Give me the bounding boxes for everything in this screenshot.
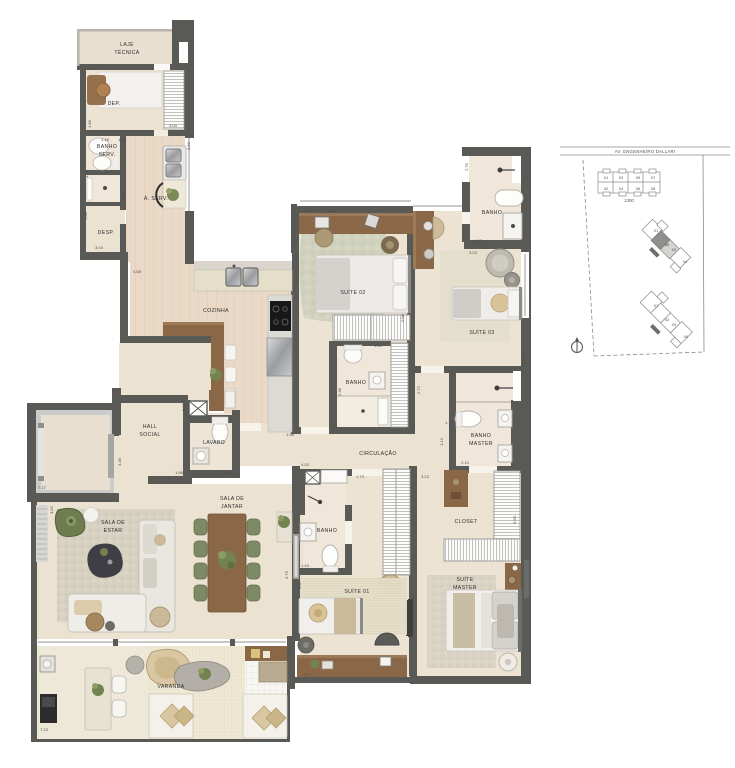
- svg-text:4.58: 4.58: [133, 269, 142, 274]
- svg-text:DESP.: DESP.: [98, 230, 115, 236]
- svg-text:1.12: 1.12: [439, 437, 444, 446]
- svg-text:SUÍTE: SUÍTE: [456, 576, 473, 583]
- svg-text:3.23: 3.23: [469, 250, 478, 255]
- svg-text:LAJE: LAJE: [120, 42, 134, 48]
- svg-text:7.23: 7.23: [40, 727, 49, 732]
- svg-text:1300: 1300: [624, 198, 634, 203]
- svg-text:DEP.: DEP.: [108, 101, 121, 107]
- svg-text:2.54: 2.54: [287, 646, 292, 655]
- svg-text:MASTER: MASTER: [469, 441, 493, 447]
- svg-text:4.20: 4.20: [301, 462, 310, 467]
- svg-text:2.10: 2.10: [461, 460, 470, 465]
- svg-text:02: 02: [665, 317, 670, 322]
- svg-text:02: 02: [665, 242, 670, 247]
- svg-text:MASTER: MASTER: [453, 585, 477, 591]
- svg-text:02: 02: [604, 186, 609, 191]
- svg-text:SOCIAL: SOCIAL: [139, 432, 160, 438]
- svg-text:ESTAR: ESTAR: [104, 528, 123, 534]
- svg-text:04: 04: [684, 334, 689, 339]
- svg-text:1.54: 1.54: [328, 208, 337, 213]
- svg-text:SUÍTE 03: SUÍTE 03: [469, 329, 494, 336]
- svg-text:05: 05: [636, 175, 641, 180]
- svg-text:2.16: 2.16: [181, 402, 186, 411]
- svg-text:1.68: 1.68: [474, 238, 483, 243]
- svg-text:4.46: 4.46: [117, 457, 122, 466]
- svg-text:2.75: 2.75: [464, 162, 469, 171]
- svg-text:COZINHA: COZINHA: [203, 308, 229, 314]
- svg-text:6.90: 6.90: [512, 515, 517, 524]
- svg-text:1.08: 1.08: [121, 191, 126, 200]
- svg-text:1.88: 1.88: [118, 137, 127, 142]
- svg-text:1.43: 1.43: [301, 563, 310, 568]
- svg-text:HALL: HALL: [143, 424, 157, 430]
- svg-text:3.07: 3.07: [297, 580, 302, 589]
- svg-text:3.92: 3.92: [49, 505, 54, 514]
- svg-text:7.17: 7.17: [38, 485, 47, 490]
- svg-text:03: 03: [672, 247, 677, 252]
- svg-text:04: 04: [619, 186, 624, 191]
- svg-text:5.79: 5.79: [284, 570, 289, 579]
- svg-text:01: 01: [604, 175, 609, 180]
- svg-text:1.73: 1.73: [356, 474, 365, 479]
- svg-text:01: 01: [654, 303, 659, 308]
- svg-text:SERV.: SERV.: [99, 152, 116, 158]
- svg-text:1.36: 1.36: [224, 471, 233, 476]
- svg-text:1.96: 1.96: [175, 470, 184, 475]
- svg-text:BANHO: BANHO: [317, 528, 337, 534]
- svg-text:3.03: 3.03: [95, 245, 104, 250]
- svg-text:SUÍTE 01: SUÍTE 01: [344, 588, 369, 595]
- svg-text:01: 01: [654, 228, 659, 233]
- svg-text:VARANDA: VARANDA: [157, 684, 184, 690]
- svg-text:1.38: 1.38: [83, 211, 88, 220]
- svg-text:1.43: 1.43: [374, 343, 383, 348]
- svg-text:1.73: 1.73: [445, 420, 454, 425]
- svg-text:2.38: 2.38: [337, 387, 342, 396]
- svg-text:0.98: 0.98: [400, 313, 405, 322]
- svg-text:BANHO: BANHO: [346, 380, 366, 386]
- svg-text:SALA DE: SALA DE: [101, 520, 125, 526]
- svg-text:AV. ENGENHEIRO DALLARI: AV. ENGENHEIRO DALLARI: [615, 149, 676, 154]
- svg-text:BANHO: BANHO: [482, 210, 502, 216]
- svg-text:Á. SERV.: Á. SERV.: [144, 195, 168, 202]
- svg-text:1.15: 1.15: [101, 137, 110, 142]
- svg-text:2.93: 2.93: [521, 356, 526, 365]
- svg-text:CLOSET: CLOSET: [455, 519, 478, 525]
- svg-text:3.62: 3.62: [186, 141, 191, 150]
- svg-text:TÉCNICA: TÉCNICA: [114, 49, 139, 56]
- svg-text:3.03: 3.03: [169, 123, 178, 128]
- svg-text:CIRCULAÇÃO: CIRCULAÇÃO: [359, 450, 397, 457]
- svg-text:1.58: 1.58: [286, 432, 295, 437]
- svg-text:LAVABO: LAVABO: [203, 440, 225, 446]
- svg-text:BANHO: BANHO: [471, 433, 491, 439]
- svg-text:1.08: 1.08: [84, 169, 89, 178]
- svg-text:06: 06: [636, 186, 641, 191]
- svg-text:08: 08: [651, 186, 656, 191]
- svg-text:BANHO: BANHO: [97, 144, 117, 150]
- svg-text:3.23: 3.23: [421, 474, 430, 479]
- svg-text:03: 03: [619, 175, 624, 180]
- svg-text:3.49: 3.49: [306, 208, 315, 213]
- svg-text:07: 07: [651, 175, 656, 180]
- svg-text:03: 03: [672, 322, 677, 327]
- svg-text:3.17: 3.17: [303, 672, 312, 677]
- svg-text:SUÍTE 02: SUÍTE 02: [340, 289, 365, 296]
- svg-text:2.72: 2.72: [416, 385, 421, 394]
- svg-text:04: 04: [683, 259, 688, 264]
- svg-text:SALA DE: SALA DE: [220, 496, 244, 502]
- svg-text:JANTAR: JANTAR: [221, 504, 243, 510]
- svg-text:1.86: 1.86: [87, 119, 92, 128]
